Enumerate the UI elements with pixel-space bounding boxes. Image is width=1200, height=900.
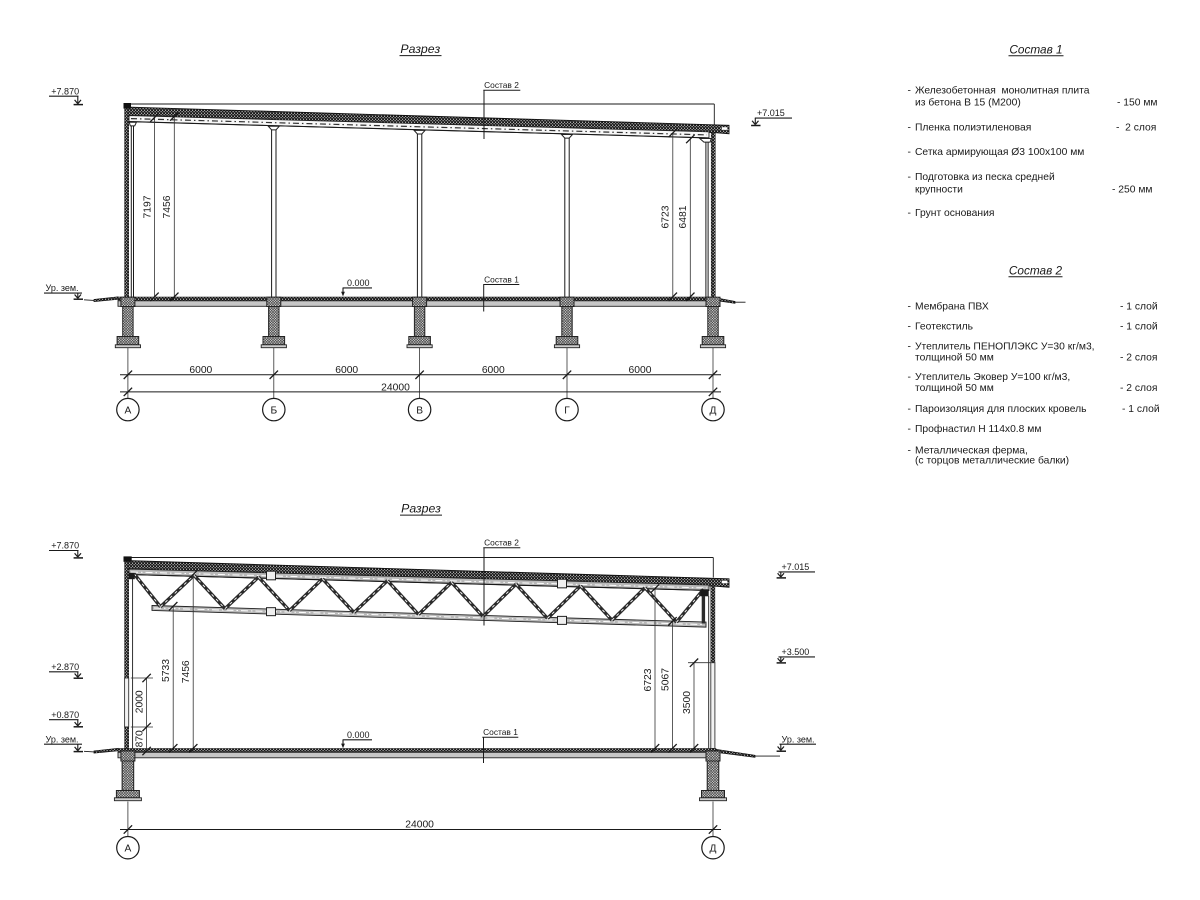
svg-text:Подготовка из песка средней: Подготовка из песка средней bbox=[915, 172, 1055, 183]
svg-text:Г: Г bbox=[564, 405, 570, 416]
svg-text:Грунт основания: Грунт основания bbox=[915, 208, 994, 219]
svg-text:6000: 6000 bbox=[482, 365, 505, 376]
svg-text:+7.015: +7.015 bbox=[757, 108, 785, 118]
svg-text:24000: 24000 bbox=[405, 819, 434, 830]
svg-text:Ур. зем.: Ур. зем. bbox=[782, 734, 815, 744]
svg-text:Утеплитель Эковер У=100 кг/м3,: Утеплитель Эковер У=100 кг/м3, bbox=[915, 372, 1070, 383]
svg-text:-: - bbox=[908, 404, 911, 415]
svg-text:Разрез: Разрез bbox=[400, 42, 440, 56]
svg-text:+7.870: +7.870 bbox=[51, 86, 79, 96]
svg-text:Мембрана ПВХ: Мембрана ПВХ bbox=[915, 301, 989, 313]
svg-text:+7.015: +7.015 bbox=[782, 562, 810, 572]
svg-text:Утеплитель ПЕНОПЛЭКС У=30 кг/м: Утеплитель ПЕНОПЛЭКС У=30 кг/м3, bbox=[915, 342, 1095, 353]
svg-text:из бетона В 15 (М200): из бетона В 15 (М200) bbox=[915, 97, 1021, 109]
svg-text:-: - bbox=[908, 424, 911, 435]
svg-text:-: - bbox=[908, 208, 911, 219]
svg-text:+3.500: +3.500 bbox=[782, 647, 810, 657]
svg-text:- 150 мм: - 150 мм bbox=[1117, 98, 1158, 109]
svg-text:6481: 6481 bbox=[678, 205, 689, 228]
svg-text:-: - bbox=[908, 372, 911, 383]
svg-text:5733: 5733 bbox=[161, 659, 172, 682]
svg-text:Состав 1: Состав 1 bbox=[483, 727, 518, 737]
svg-text:А: А bbox=[125, 843, 132, 854]
svg-text:- 1 слой: - 1 слой bbox=[1120, 302, 1158, 313]
svg-text:Б: Б bbox=[270, 405, 277, 416]
svg-text:- 1 слой: - 1 слой bbox=[1120, 322, 1158, 333]
svg-text:Состав 2: Состав 2 bbox=[484, 538, 519, 548]
svg-text:-: - bbox=[908, 322, 911, 333]
svg-text:6000: 6000 bbox=[335, 365, 358, 376]
svg-text:- 2 слоя: - 2 слоя bbox=[1116, 123, 1156, 134]
svg-text:- 2 слоя: - 2 слоя bbox=[1120, 352, 1157, 363]
svg-text:(с торцов металлические балки): (с торцов металлические балки) bbox=[915, 454, 1069, 466]
svg-text:толщиной 50 мм: толщиной 50 мм bbox=[915, 383, 994, 394]
svg-text:Состав 1: Состав 1 bbox=[1009, 42, 1062, 56]
svg-text:2000: 2000 bbox=[135, 690, 146, 713]
svg-text:-: - bbox=[908, 342, 911, 353]
svg-text:-: - bbox=[908, 147, 911, 158]
svg-text:толщиной 50 мм: толщиной 50 мм bbox=[915, 352, 994, 363]
svg-text:Д: Д bbox=[710, 405, 717, 416]
svg-text:Пароизоляция для плоских крове: Пароизоляция для плоских кровель bbox=[915, 404, 1086, 415]
svg-text:+2.870: +2.870 bbox=[51, 662, 79, 672]
svg-text:6723: 6723 bbox=[643, 668, 654, 691]
svg-text:Ур. зем.: Ур. зем. bbox=[46, 734, 79, 744]
svg-text:крупности: крупности bbox=[915, 184, 963, 195]
svg-text:6000: 6000 bbox=[629, 365, 652, 376]
svg-text:- 2 слоя: - 2 слоя bbox=[1120, 383, 1157, 394]
svg-text:6723: 6723 bbox=[661, 205, 672, 228]
svg-text:0.000: 0.000 bbox=[347, 278, 370, 288]
svg-text:Пленка полиэтиленовая: Пленка полиэтиленовая bbox=[915, 123, 1031, 134]
svg-text:Сетка армирующая Ø3 100х100 мм: Сетка армирующая Ø3 100х100 мм bbox=[915, 147, 1084, 158]
svg-text:870: 870 bbox=[135, 730, 146, 747]
svg-text:В: В bbox=[416, 405, 423, 416]
svg-text:-: - bbox=[908, 172, 911, 183]
svg-text:Состав 2: Состав 2 bbox=[1009, 263, 1063, 277]
svg-text:-: - bbox=[908, 123, 911, 134]
svg-text:Железобетонная монолитная пли: Железобетонная монолитная плита bbox=[915, 85, 1090, 97]
svg-text:- 1 слой: - 1 слой bbox=[1122, 404, 1160, 415]
svg-text:7197: 7197 bbox=[142, 195, 153, 218]
svg-text:7456: 7456 bbox=[162, 195, 173, 218]
svg-text:Ур. зем.: Ур. зем. bbox=[46, 283, 79, 293]
svg-text:0.000: 0.000 bbox=[347, 730, 370, 740]
svg-text:+0.870: +0.870 bbox=[51, 710, 79, 720]
svg-text:5067: 5067 bbox=[660, 668, 671, 691]
svg-text:Разрез: Разрез bbox=[401, 502, 441, 516]
svg-text:Состав 1: Состав 1 bbox=[484, 274, 519, 284]
svg-text:-: - bbox=[908, 302, 911, 313]
svg-text:7456: 7456 bbox=[181, 660, 192, 683]
svg-text:24000: 24000 bbox=[381, 382, 410, 393]
svg-text:Состав 2: Состав 2 bbox=[484, 80, 519, 90]
svg-text:3500: 3500 bbox=[682, 691, 693, 714]
svg-text:-: - bbox=[908, 86, 911, 97]
svg-text:6000: 6000 bbox=[189, 365, 212, 376]
svg-text:А: А bbox=[125, 405, 132, 416]
svg-text:Д: Д bbox=[710, 843, 717, 854]
svg-text:-: - bbox=[908, 445, 911, 456]
svg-text:Геотекстиль: Геотекстиль bbox=[915, 322, 973, 333]
svg-text:Профнастил Н 114х0.8 мм: Профнастил Н 114х0.8 мм bbox=[915, 423, 1041, 435]
svg-text:+7.870: +7.870 bbox=[51, 541, 79, 551]
svg-text:- 250 мм: - 250 мм bbox=[1112, 184, 1153, 195]
